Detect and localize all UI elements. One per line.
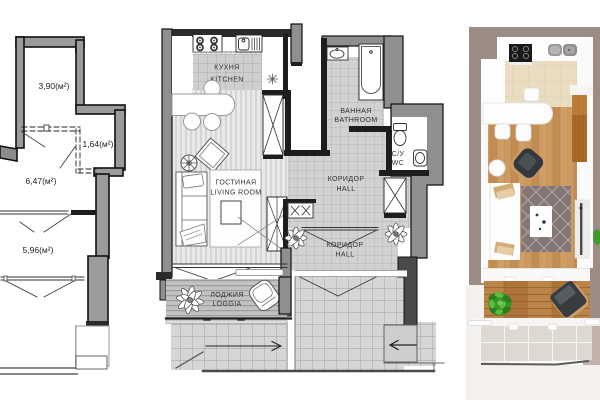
svg-text:ВАННАЯ: ВАННАЯ (340, 108, 371, 115)
svg-text:LOGGIA: LOGGIA (212, 301, 241, 308)
svg-text:3,90(м²): 3,90(м²) (39, 81, 70, 91)
svg-text:5,96(м²): 5,96(м²) (23, 245, 54, 255)
svg-text:ЛОДЖИЯ: ЛОДЖИЯ (210, 292, 244, 299)
svg-text:HALL: HALL (335, 252, 354, 259)
svg-text:КОРИДОР: КОРИДОР (327, 242, 364, 249)
svg-text:WC: WC (392, 160, 404, 167)
svg-text:HALL: HALL (336, 186, 355, 193)
svg-text:BATHROOM: BATHROOM (334, 117, 377, 124)
svg-text:КОРИДОР: КОРИДОР (328, 176, 365, 183)
svg-text:LIVING ROOM: LIVING ROOM (210, 190, 261, 197)
svg-text:С/У: С/У (392, 151, 405, 158)
svg-text:6,47(м²): 6,47(м²) (26, 176, 57, 186)
svg-text:ГОСТИНАЯ: ГОСТИНАЯ (216, 180, 257, 187)
svg-text:1,64(м²): 1,64(м²) (83, 139, 114, 149)
svg-text:КУХНЯ: КУХНЯ (214, 65, 239, 72)
